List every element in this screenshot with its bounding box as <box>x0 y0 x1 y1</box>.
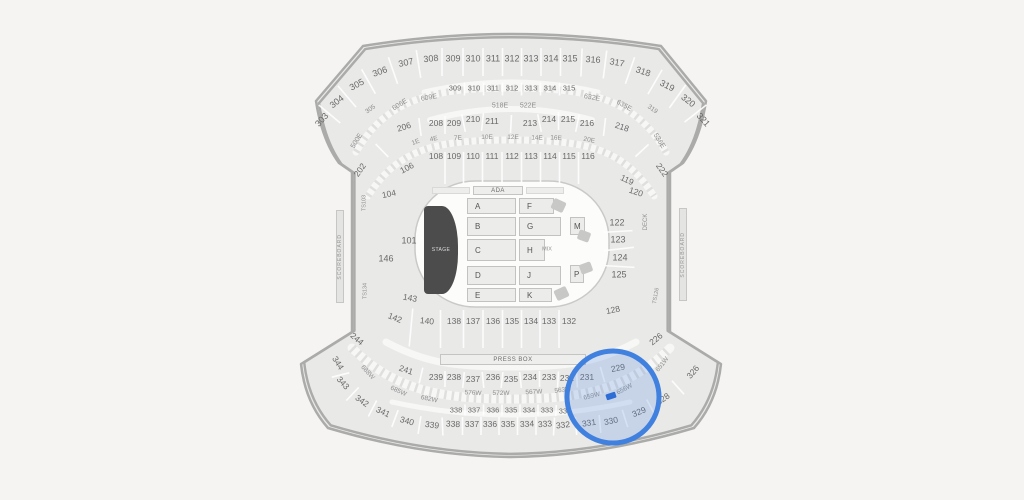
section-label-134[interactable]: 134 <box>524 317 538 326</box>
section-label-14e[interactable]: 14E <box>531 136 543 143</box>
section-label-1e[interactable]: 1E <box>411 138 421 147</box>
section-label-231[interactable]: 231 <box>580 373 594 382</box>
section-label-315[interactable]: 315 <box>563 84 576 92</box>
section-label-311[interactable]: 311 <box>486 55 500 64</box>
section-label-688w[interactable]: 688W <box>359 365 375 382</box>
section-labels: 3033043053063073083093103113123133143153… <box>0 0 1024 500</box>
section-label-518e[interactable]: 518E <box>492 103 508 110</box>
section-label-123[interactable]: 123 <box>610 236 625 245</box>
section-label-310[interactable]: 310 <box>468 84 481 92</box>
section-label-229[interactable]: 229 <box>610 362 626 373</box>
section-label-308[interactable]: 308 <box>423 54 439 65</box>
section-label-310[interactable]: 310 <box>465 55 480 64</box>
section-label-606e[interactable]: 606E <box>391 98 409 113</box>
section-label-342[interactable]: 342 <box>354 393 370 408</box>
section-label-142[interactable]: 142 <box>387 311 403 324</box>
section-label-114[interactable]: 114 <box>543 152 557 161</box>
section-label-233[interactable]: 233 <box>542 373 556 382</box>
section-label-313[interactable]: 313 <box>523 55 538 64</box>
section-label-344[interactable]: 344 <box>331 355 346 372</box>
section-label-235[interactable]: 235 <box>504 375 518 384</box>
section-label-10e[interactable]: 10E <box>481 135 493 142</box>
seat-map-canvas: A B C D E F G H J K M P ADA PRESS BOX ST… <box>0 0 1024 500</box>
section-label-334[interactable]: 334 <box>520 420 534 429</box>
section-label-306[interactable]: 306 <box>371 65 388 79</box>
section-label-124[interactable]: 124 <box>612 254 627 263</box>
section-label-226[interactable]: 226 <box>648 331 664 347</box>
section-label-210[interactable]: 210 <box>466 115 480 124</box>
section-label-104[interactable]: 104 <box>381 188 397 199</box>
section-label-244[interactable]: 244 <box>349 331 365 347</box>
section-label-116[interactable]: 116 <box>581 152 595 161</box>
section-label-572w[interactable]: 572W <box>493 391 510 398</box>
section-label-111[interactable]: 111 <box>486 152 499 161</box>
section-label-237[interactable]: 237 <box>466 375 480 384</box>
section-label-236[interactable]: 236 <box>486 373 500 382</box>
section-label-143[interactable]: 143 <box>402 293 417 304</box>
section-label-115[interactable]: 115 <box>562 152 576 161</box>
section-label-656w[interactable]: 656W <box>616 383 634 397</box>
section-label-146[interactable]: 146 <box>378 255 393 264</box>
section-label-331[interactable]: 331 <box>581 418 596 428</box>
section-label-339[interactable]: 339 <box>424 420 439 430</box>
section-label-303[interactable]: 303 <box>314 111 331 128</box>
section-label-135[interactable]: 135 <box>505 317 519 326</box>
section-label-318[interactable]: 318 <box>634 65 651 78</box>
section-label-536e[interactable]: 536E <box>652 132 667 150</box>
section-label-332[interactable]: 332 <box>556 420 571 430</box>
section-label-333[interactable]: 333 <box>541 406 554 414</box>
section-label-216[interactable]: 216 <box>580 119 594 128</box>
zone-label-ts103: TS103 <box>362 195 368 211</box>
section-label-7e[interactable]: 7E <box>454 135 462 142</box>
section-label-314[interactable]: 314 <box>544 84 557 92</box>
section-label-337[interactable]: 337 <box>465 420 479 429</box>
section-label-336[interactable]: 336 <box>483 420 497 429</box>
section-label-340[interactable]: 340 <box>399 415 415 427</box>
section-label-133[interactable]: 133 <box>542 317 556 326</box>
section-label-101[interactable]: 101 <box>401 237 416 246</box>
section-label-136[interactable]: 136 <box>486 317 500 326</box>
section-label-305[interactable]: 305 <box>365 104 378 116</box>
section-label-334[interactable]: 334 <box>523 406 536 414</box>
section-label-659w[interactable]: 659W <box>583 392 601 402</box>
section-label-563w[interactable]: 563W <box>554 387 572 396</box>
section-label-312[interactable]: 312 <box>504 55 519 64</box>
section-label-214[interactable]: 214 <box>542 115 556 124</box>
section-label-208[interactable]: 208 <box>429 119 443 128</box>
section-label-213[interactable]: 213 <box>523 119 537 128</box>
zone-label-deck: DECK <box>643 214 649 231</box>
section-label-307[interactable]: 307 <box>398 57 415 69</box>
section-label-106[interactable]: 106 <box>399 161 416 175</box>
section-label-12e[interactable]: 12E <box>507 135 519 142</box>
section-label-317[interactable]: 317 <box>609 57 625 68</box>
section-label-132[interactable]: 132 <box>562 317 576 326</box>
section-label-311[interactable]: 311 <box>487 84 499 92</box>
section-label-336[interactable]: 336 <box>487 406 500 414</box>
section-label-338[interactable]: 338 <box>446 419 461 428</box>
section-label-319[interactable]: 319 <box>646 104 659 116</box>
section-label-309[interactable]: 309 <box>445 55 460 64</box>
section-label-122[interactable]: 122 <box>609 219 624 228</box>
section-label-202[interactable]: 202 <box>352 162 367 178</box>
section-label-209[interactable]: 209 <box>447 119 461 128</box>
section-label-218[interactable]: 218 <box>614 121 630 133</box>
section-label-313[interactable]: 313 <box>525 84 538 92</box>
section-label-685w[interactable]: 685W <box>389 385 407 398</box>
section-label-651w[interactable]: 651W <box>655 356 671 373</box>
section-label-238[interactable]: 238 <box>447 373 461 382</box>
section-label-635e[interactable]: 635E <box>615 99 633 113</box>
section-label-632e[interactable]: 632E <box>583 93 600 103</box>
section-label-120[interactable]: 120 <box>628 186 644 198</box>
section-label-234[interactable]: 234 <box>523 373 537 382</box>
section-label-330[interactable]: 330 <box>603 415 619 426</box>
section-label-312[interactable]: 312 <box>506 84 519 92</box>
section-label-113[interactable]: 113 <box>524 152 538 161</box>
section-label-341[interactable]: 341 <box>375 405 391 419</box>
zone-label-ts134: TS134 <box>363 283 369 299</box>
section-label-329[interactable]: 329 <box>631 405 647 418</box>
section-label-315[interactable]: 315 <box>562 55 577 64</box>
section-label-137[interactable]: 137 <box>466 317 480 326</box>
section-label-314[interactable]: 314 <box>543 55 558 64</box>
section-label-211[interactable]: 211 <box>485 117 499 126</box>
section-label-567w[interactable]: 567W <box>525 389 542 396</box>
section-label-338[interactable]: 338 <box>450 406 463 414</box>
section-label-4e[interactable]: 4E <box>429 136 438 144</box>
section-label-337[interactable]: 337 <box>468 406 481 414</box>
section-label-319[interactable]: 319 <box>658 79 675 94</box>
section-label-112[interactable]: 112 <box>505 152 519 161</box>
section-label-125[interactable]: 125 <box>611 271 626 280</box>
section-label-109[interactable]: 109 <box>447 152 461 161</box>
section-label-333[interactable]: 333 <box>538 419 553 428</box>
section-label-609e[interactable]: 609E <box>420 93 437 103</box>
section-label-576w[interactable]: 576W <box>464 390 481 397</box>
section-label-140[interactable]: 140 <box>420 316 435 326</box>
section-label-215[interactable]: 215 <box>561 115 575 124</box>
section-label-500e[interactable]: 500E <box>350 132 365 150</box>
section-label-335[interactable]: 335 <box>501 420 515 429</box>
section-label-328[interactable]: 328 <box>655 391 671 406</box>
section-label-108[interactable]: 108 <box>429 152 443 161</box>
section-label-128[interactable]: 128 <box>605 304 621 315</box>
section-label-138[interactable]: 138 <box>447 317 461 326</box>
section-label-304[interactable]: 304 <box>328 94 345 110</box>
section-label-309[interactable]: 309 <box>449 84 462 92</box>
section-label-222[interactable]: 222 <box>654 162 669 178</box>
section-label-206[interactable]: 206 <box>396 121 412 133</box>
section-label-110[interactable]: 110 <box>466 152 480 161</box>
section-label-321[interactable]: 321 <box>695 111 712 128</box>
section-label-335[interactable]: 335 <box>505 406 518 414</box>
section-label-343[interactable]: 343 <box>335 375 351 391</box>
section-label-320[interactable]: 320 <box>679 93 696 109</box>
section-label-20e[interactable]: 20E <box>583 137 596 146</box>
section-label-682w[interactable]: 682W <box>420 395 438 405</box>
zone-label-ts126: TS126 <box>653 288 661 305</box>
section-label-232[interactable]: 232 <box>560 374 574 383</box>
section-label-16e[interactable]: 16E <box>550 135 562 142</box>
section-label-305[interactable]: 305 <box>348 77 365 92</box>
section-label-239[interactable]: 239 <box>429 373 443 382</box>
section-label-522e[interactable]: 522E <box>520 103 536 110</box>
zone-label-mix: MIX <box>542 247 552 253</box>
section-label-241[interactable]: 241 <box>398 364 414 376</box>
section-label-332[interactable]: 332 <box>559 407 572 415</box>
section-label-316[interactable]: 316 <box>585 55 601 65</box>
section-label-326[interactable]: 326 <box>685 364 701 380</box>
